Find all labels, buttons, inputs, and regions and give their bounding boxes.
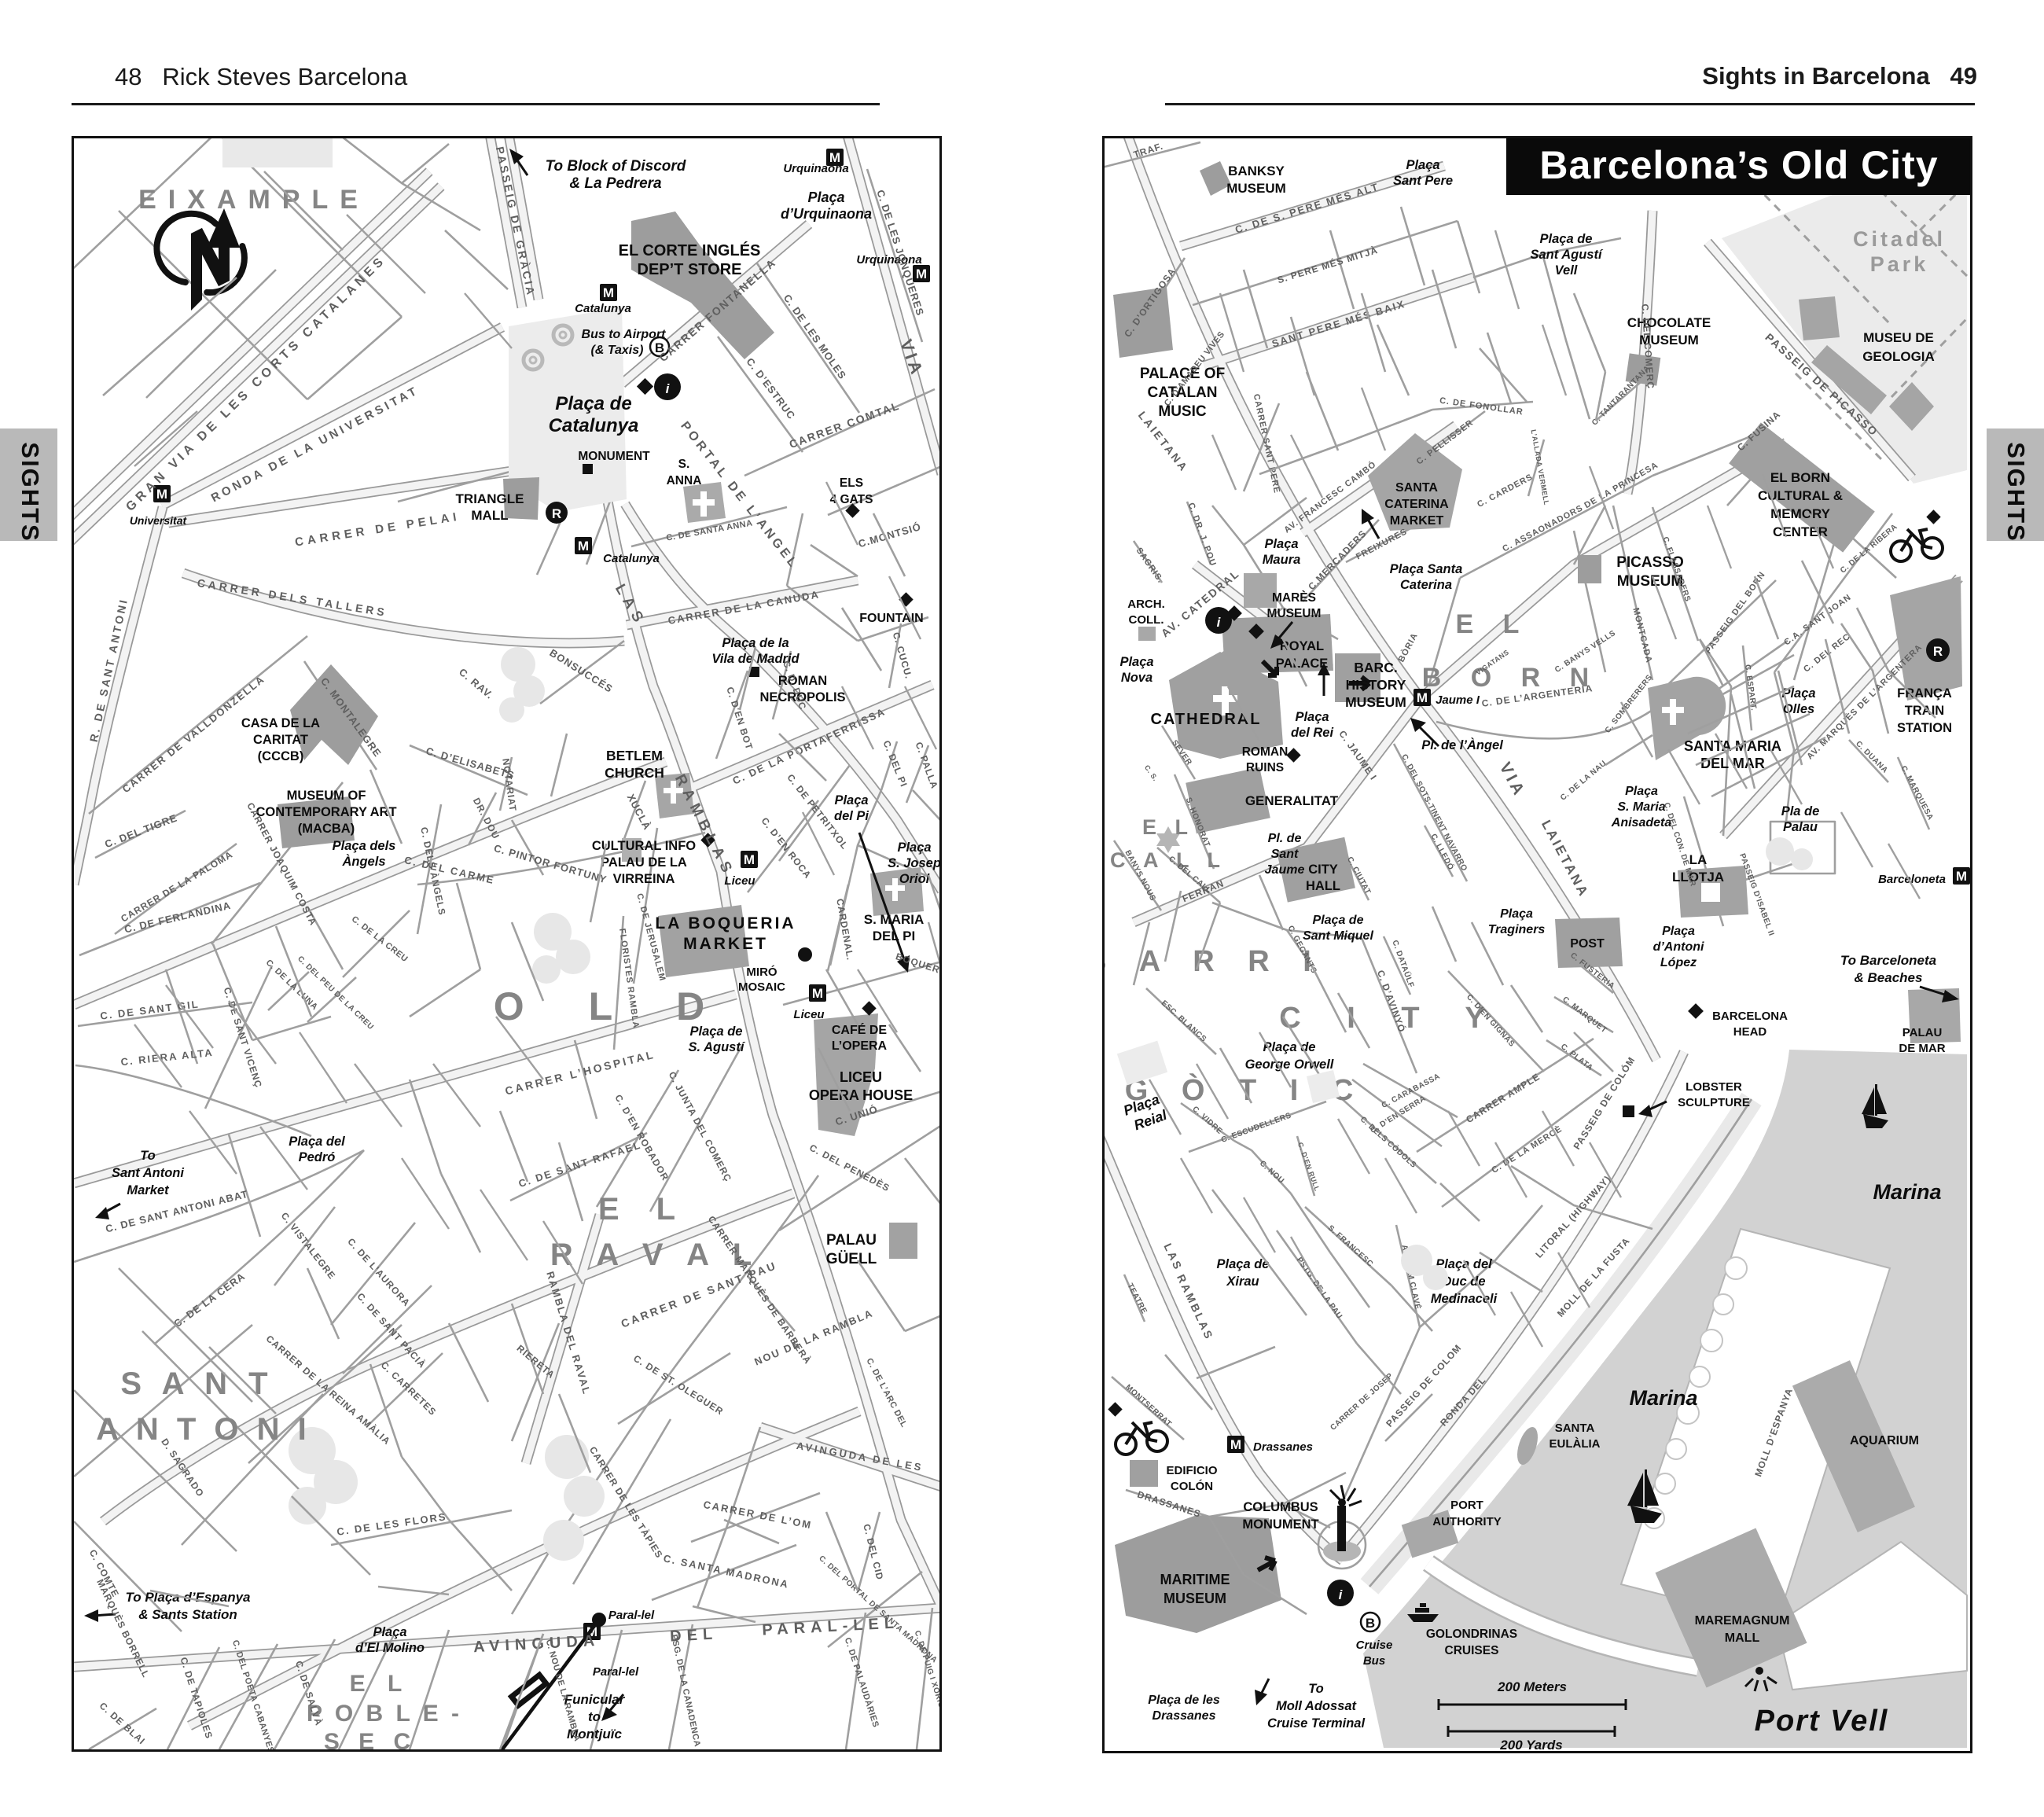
svg-text:C. DEL PENEDÈS: C. DEL PENEDÈS xyxy=(807,1142,892,1194)
svg-text:CARRER DELS TALLERS: CARRER DELS TALLERS xyxy=(197,576,388,619)
svg-text:PSTG. DE LA PAU: PSTG. DE LA PAU xyxy=(1295,1256,1344,1321)
svg-text:CRUISES: CRUISES xyxy=(1445,1644,1499,1657)
svg-text:M: M xyxy=(1230,1437,1241,1452)
svg-text:d’Urquinaona: d’Urquinaona xyxy=(781,206,872,222)
svg-text:C. RAV.: C. RAV. xyxy=(457,666,496,701)
svg-text:MONUMENT: MONUMENT xyxy=(578,450,650,463)
svg-text:Plaça: Plaça xyxy=(1662,925,1695,938)
svg-text:RONDA DEL: RONDA DEL xyxy=(1438,1374,1488,1429)
svg-text:EL CORTE INGLÉS: EL CORTE INGLÉS xyxy=(619,241,761,259)
svg-text:PSG. DE LA CANADENCA: PSG. DE LA CANADENCA xyxy=(669,1634,702,1748)
svg-text:Plaça: Plaça xyxy=(373,1625,406,1639)
svg-text:Sant: Sant xyxy=(1271,848,1299,861)
svg-text:López: López xyxy=(1660,956,1697,969)
svg-text:AV. FRANCESC CAMBÓ: AV. FRANCESC CAMBÓ xyxy=(1282,459,1378,535)
svg-text:M: M xyxy=(578,539,589,554)
svg-text:Medinaceli: Medinaceli xyxy=(1431,1292,1498,1306)
svg-text:Àngels: Àngels xyxy=(341,854,385,869)
svg-text:To: To xyxy=(1308,1682,1324,1696)
svg-text:CONTEMPORARY ART: CONTEMPORARY ART xyxy=(256,805,396,819)
svg-text:VIA: VIA xyxy=(1496,760,1529,800)
svg-text:GEOLOGIA: GEOLOGIA xyxy=(1862,349,1935,364)
svg-text:MUSIC: MUSIC xyxy=(1158,403,1207,420)
svg-text:C. DE PUIG I XORIGUER: C. DE PUIG I XORIGUER xyxy=(913,1630,942,1727)
svg-text:C. DE LA MERCÈ: C. DE LA MERCÈ xyxy=(1490,1124,1564,1175)
svg-text:HALL: HALL xyxy=(1306,879,1340,893)
svg-text:M: M xyxy=(603,285,614,300)
svg-text:To Barceloneta: To Barceloneta xyxy=(1840,953,1936,968)
svg-text:EL BORN: EL BORN xyxy=(1770,470,1830,485)
svg-text:CULTURAL INFO: CULTURAL INFO xyxy=(592,839,696,853)
svg-text:Palau: Palau xyxy=(1783,820,1818,834)
svg-text:DE MAR: DE MAR xyxy=(1899,1042,1945,1055)
svg-text:S A N T: S A N T xyxy=(120,1366,274,1401)
svg-text:C. DEL CID: C. DEL CID xyxy=(861,1523,885,1581)
svg-text:EDIFICIO: EDIFICIO xyxy=(1166,1464,1217,1477)
svg-text:MUSEUM: MUSEUM xyxy=(1267,607,1322,620)
svg-text:CHOCOLATE: CHOCOLATE xyxy=(1627,315,1711,330)
svg-text:Plaça Santa: Plaça Santa xyxy=(1390,562,1463,576)
svg-text:Barcelona’s Old City: Barcelona’s Old City xyxy=(1539,143,1938,187)
svg-text:TRAF.: TRAF. xyxy=(1132,141,1164,160)
svg-text:LOBSTER: LOBSTER xyxy=(1686,1080,1742,1094)
svg-text:CASA DE LA: CASA DE LA xyxy=(241,716,320,730)
svg-text:d’El Molino: d’El Molino xyxy=(355,1641,425,1655)
svg-text:C. RIERA ALTA: C. RIERA ALTA xyxy=(120,1046,214,1068)
svg-text:MUSEUM: MUSEUM xyxy=(1345,694,1406,710)
svg-text:E L: E L xyxy=(598,1192,689,1227)
svg-text:MUSEUM: MUSEUM xyxy=(1226,181,1286,196)
svg-text:S. Maria: S. Maria xyxy=(1617,800,1665,814)
svg-text:O L D: O L D xyxy=(494,984,731,1028)
svg-text:& La Pedrera: & La Pedrera xyxy=(569,175,662,192)
svg-text:Oriol: Oriol xyxy=(899,872,930,886)
svg-text:Plaça de: Plaça de xyxy=(1217,1257,1270,1271)
svg-text:EULÀLIA: EULÀLIA xyxy=(1550,1437,1601,1451)
svg-text:C. JUNTA DEL COMERÇ: C. JUNTA DEL COMERÇ xyxy=(667,1070,734,1184)
svg-text:Pla de: Pla de xyxy=(1781,804,1820,818)
svg-text:AQUARIUM: AQUARIUM xyxy=(1850,1434,1919,1447)
svg-text:C. DEL SOTS-TINENT NAVARRO: C. DEL SOTS-TINENT NAVARRO xyxy=(1399,753,1469,874)
svg-text:GÜELL: GÜELL xyxy=(826,1251,877,1267)
svg-text:FOUNTAIN: FOUNTAIN xyxy=(859,612,923,625)
svg-text:Plaça dels: Plaça dels xyxy=(333,839,396,853)
svg-text:SCULPTURE: SCULPTURE xyxy=(1678,1096,1750,1109)
svg-text:E L: E L xyxy=(350,1671,410,1697)
svg-text:Plaça: Plaça xyxy=(1625,785,1658,798)
svg-text:CARRER DE PELAI: CARRER DE PELAI xyxy=(294,510,461,550)
svg-text:LICEU: LICEU xyxy=(840,1069,882,1085)
svg-text:Catalunya: Catalunya xyxy=(575,302,631,315)
svg-text:Sant Miquel: Sant Miquel xyxy=(1303,929,1373,943)
svg-text:Market: Market xyxy=(127,1183,170,1197)
svg-text:Catalunya: Catalunya xyxy=(549,415,639,436)
svg-text:MONTCADA: MONTCADA xyxy=(1630,607,1653,664)
svg-text:C. DE PALAUDÀRIES: C. DE PALAUDÀRIES xyxy=(843,1636,881,1729)
svg-text:A N T O N I: A N T O N I xyxy=(96,1412,311,1447)
svg-text:BÒRIA: BÒRIA xyxy=(1396,631,1420,664)
svg-text:CHURCH: CHURCH xyxy=(605,765,664,781)
svg-text:Traginers: Traginers xyxy=(1488,923,1546,936)
svg-text:PALAU DE LA: PALAU DE LA xyxy=(601,855,687,870)
svg-text:Port Vell: Port Vell xyxy=(1755,1705,1889,1738)
svg-text:MIRÓ: MIRÓ xyxy=(746,965,777,979)
svg-text:PORT: PORT xyxy=(1450,1499,1483,1512)
svg-text:del Pi: del Pi xyxy=(834,809,869,823)
svg-text:S. FRANCESC: S. FRANCESC xyxy=(1326,1224,1375,1269)
svg-text:Sant Antoni: Sant Antoni xyxy=(112,1166,184,1180)
svg-text:COLÓN: COLÓN xyxy=(1171,1479,1213,1493)
svg-text:DEL PI: DEL PI xyxy=(873,929,915,943)
svg-text:Catalunya: Catalunya xyxy=(603,552,660,565)
svg-text:MARITIME: MARITIME xyxy=(1160,1572,1230,1587)
svg-text:Plaça del: Plaça del xyxy=(289,1135,345,1149)
svg-text:Plaça: Plaça xyxy=(1119,655,1153,669)
svg-text:(& Taxis): (& Taxis) xyxy=(591,344,644,357)
svg-text:Jaume I: Jaume I xyxy=(1436,693,1480,707)
svg-text:Sant Pere: Sant Pere xyxy=(1393,174,1453,188)
svg-text:Park: Park xyxy=(1870,252,1929,276)
svg-text:(CCCB): (CCCB) xyxy=(258,749,304,763)
svg-text:C. ESCUDELLERS: C. ESCUDELLERS xyxy=(1220,1111,1292,1145)
svg-text:Plaça de: Plaça de xyxy=(690,1024,743,1039)
svg-text:BETLEM: BETLEM xyxy=(606,748,663,763)
svg-text:200 Meters: 200 Meters xyxy=(1497,1679,1567,1694)
svg-text:HEAD: HEAD xyxy=(1733,1025,1767,1039)
svg-text:C. NOU DE LA RAMBLA: C. NOU DE LA RAMBLA xyxy=(544,1639,583,1742)
svg-text:S.: S. xyxy=(678,458,690,471)
svg-text:B: B xyxy=(1366,1616,1375,1631)
svg-text:M: M xyxy=(744,852,755,867)
svg-text:E L: E L xyxy=(1456,609,1531,639)
svg-text:C. SANTA MADRONA: C. SANTA MADRONA xyxy=(662,1552,790,1591)
svg-text:MUSEU DE: MUSEU DE xyxy=(1863,330,1934,345)
svg-text:CARITAT: CARITAT xyxy=(253,733,308,747)
svg-text:TRIANGLE: TRIANGLE xyxy=(456,491,524,506)
svg-text:R: R xyxy=(1933,644,1943,659)
svg-text:P O B L E -: P O B L E - xyxy=(307,1701,462,1727)
svg-text:C. PINTOR FORTUNY: C. PINTOR FORTUNY xyxy=(493,842,608,885)
svg-text:TEATRE: TEATRE xyxy=(1125,1282,1149,1315)
svg-text:CATHEDRAL: CATHEDRAL xyxy=(1151,711,1262,728)
svg-text:Pedró: Pedró xyxy=(299,1150,336,1164)
svg-text:Nova: Nova xyxy=(1121,671,1153,685)
svg-text:PASSEIG DE COLÓM: PASSEIG DE COLÓM xyxy=(1571,1054,1638,1152)
svg-text:Plaça de: Plaça de xyxy=(555,393,631,414)
svg-text:4 GATS: 4 GATS xyxy=(830,493,873,506)
svg-text:Maura: Maura xyxy=(1263,553,1301,567)
svg-text:OPERA HOUSE: OPERA HOUSE xyxy=(809,1087,913,1103)
svg-text:ELS: ELS xyxy=(840,476,863,490)
svg-text:BARC.: BARC. xyxy=(1354,660,1397,675)
svg-text:DRASSANES: DRASSANES xyxy=(1136,1489,1203,1520)
svg-text:C. DE SANT RAFAEL: C. DE SANT RAFAEL xyxy=(517,1138,643,1190)
svg-text:CARRER AMPLE: CARRER AMPLE xyxy=(1464,1071,1542,1125)
svg-text:Liceu: Liceu xyxy=(793,1008,824,1021)
svg-text:C. MARQUET: C. MARQUET xyxy=(1561,995,1608,1035)
svg-text:C. DR. J. POU: C. DR. J. POU xyxy=(1186,502,1218,568)
svg-text:Marina: Marina xyxy=(1873,1180,1941,1204)
svg-text:& Beaches: & Beaches xyxy=(1855,970,1923,985)
svg-text:d’Antoni: d’Antoni xyxy=(1653,940,1704,954)
svg-text:Bus to Airport: Bus to Airport xyxy=(582,328,667,341)
svg-text:To Block of Discord: To Block of Discord xyxy=(546,158,686,175)
svg-text:L’OPERA: L’OPERA xyxy=(832,1039,888,1053)
svg-text:Marina: Marina xyxy=(1629,1386,1697,1410)
svg-text:GOLONDRINAS: GOLONDRINAS xyxy=(1426,1628,1517,1641)
svg-text:MARKET: MARKET xyxy=(1390,514,1444,528)
svg-text:Plaça: Plaça xyxy=(834,793,868,807)
svg-text:MUSEUM: MUSEUM xyxy=(1164,1591,1226,1606)
svg-text:CAFÉ DE: CAFÉ DE xyxy=(832,1022,888,1037)
svg-text:LA BOQUERIA: LA BOQUERIA xyxy=(655,914,796,932)
svg-text:C. D’EN ROBADOR: C. D’EN ROBADOR xyxy=(612,1093,671,1183)
svg-text:RUINS: RUINS xyxy=(1246,761,1284,774)
svg-text:LAS: LAS xyxy=(1161,1241,1185,1273)
svg-text:B A R R I: B A R R I xyxy=(1102,945,1324,978)
svg-text:MOSAIC: MOSAIC xyxy=(738,980,785,994)
svg-text:C. ASSAONADORS: C. ASSAONADORS xyxy=(1501,503,1585,554)
svg-text:Plaça: Plaça xyxy=(807,189,844,205)
svg-text:Plaça: Plaça xyxy=(1406,158,1439,172)
svg-text:S. PERE MÉS MITJÀ: S. PERE MÉS MITJÀ xyxy=(1276,244,1380,285)
svg-text:C. NOU: C. NOU xyxy=(1258,1159,1286,1186)
svg-text:Moll Adossat: Moll Adossat xyxy=(1276,1699,1358,1713)
svg-text:Funicular: Funicular xyxy=(564,1692,626,1707)
svg-text:C. S.: C. S. xyxy=(1143,763,1160,782)
svg-text:ARCH.: ARCH. xyxy=(1127,598,1165,611)
svg-text:PALAU: PALAU xyxy=(1902,1026,1943,1039)
svg-text:del Rei: del Rei xyxy=(1291,726,1334,740)
svg-text:Caterina: Caterina xyxy=(1400,578,1452,592)
svg-text:MUSEUM: MUSEUM xyxy=(1617,573,1683,590)
svg-text:L’ALLADA VERMELL: L’ALLADA VERMELL xyxy=(1530,429,1551,506)
svg-text:AUTHORITY: AUTHORITY xyxy=(1432,1515,1502,1528)
svg-text:CARRER COMTAL: CARRER COMTAL xyxy=(788,399,902,451)
svg-text:C. DEL REC: C. DEL REC xyxy=(1802,632,1852,675)
svg-text:BONSUCCÉS: BONSUCCÉS xyxy=(547,646,615,695)
svg-text:C. DE LA NAU: C. DE LA NAU xyxy=(1559,759,1608,802)
svg-text:STATION: STATION xyxy=(1897,721,1952,735)
svg-text:Plaça de: Plaça de xyxy=(1313,914,1364,927)
svg-text:S. MARIA: S. MARIA xyxy=(864,912,925,927)
svg-text:POST: POST xyxy=(1570,937,1605,951)
svg-text:Drassanes: Drassanes xyxy=(1153,1709,1216,1723)
svg-text:C. D’EN RULL: C. D’EN RULL xyxy=(1296,1141,1322,1192)
svg-text:C. D’ESTRUC: C. D’ESTRUC xyxy=(744,355,798,421)
svg-text:C. DE LA CREU: C. DE LA CREU xyxy=(350,914,410,964)
svg-text:Drassanes: Drassanes xyxy=(1253,1440,1313,1454)
svg-text:M: M xyxy=(916,267,927,281)
svg-text:SANTA: SANTA xyxy=(1555,1422,1595,1435)
svg-text:PALACE: PALACE xyxy=(1276,657,1329,671)
svg-text:CITY: CITY xyxy=(1308,863,1338,877)
svg-text:200 Yards: 200 Yards xyxy=(1499,1738,1562,1753)
svg-text:PALAU: PALAU xyxy=(826,1232,877,1249)
svg-text:Plaça: Plaça xyxy=(1500,907,1533,921)
svg-text:MONUMENT: MONUMENT xyxy=(1242,1517,1318,1532)
svg-text:M: M xyxy=(1956,869,1967,884)
svg-text:Anisadeta: Anisadeta xyxy=(1611,816,1672,829)
svg-text:C. DUANA: C. DUANA xyxy=(1854,740,1889,775)
svg-text:& Sants Station: & Sants Station xyxy=(138,1607,237,1622)
svg-text:Cruise: Cruise xyxy=(1356,1639,1393,1652)
svg-text:Bus: Bus xyxy=(1363,1654,1385,1668)
svg-text:E L: E L xyxy=(1142,815,1194,839)
svg-text:VIA: VIA xyxy=(896,337,928,379)
svg-text:Cruise Terminal: Cruise Terminal xyxy=(1267,1716,1366,1731)
svg-text:(MACBA): (MACBA) xyxy=(298,822,355,836)
svg-text:Vell: Vell xyxy=(1555,263,1578,278)
svg-text:Plaça: Plaça xyxy=(1295,710,1329,724)
svg-text:C. MARQUESA: C. MARQUESA xyxy=(1899,764,1935,822)
svg-text:COLL.: COLL. xyxy=(1129,613,1164,627)
svg-text:Sant Agustí: Sant Agustí xyxy=(1530,248,1603,262)
svg-text:LLOTJA: LLOTJA xyxy=(1672,870,1724,885)
svg-text:S E C: S E C xyxy=(324,1729,417,1752)
svg-text:CARRER DE L’OM: CARRER DE L’OM xyxy=(702,1499,813,1532)
svg-text:Paral-lel: Paral-lel xyxy=(593,1665,639,1679)
svg-text:DEP’T STORE: DEP’T STORE xyxy=(638,261,742,278)
svg-text:ROMAN: ROMAN xyxy=(1242,745,1289,759)
svg-text:HISTORY: HISTORY xyxy=(1346,677,1406,693)
svg-text:SANT PERE MÉS BAIX: SANT PERE MÉS BAIX xyxy=(1270,298,1407,350)
svg-text:C. DE SANTA ANNA: C. DE SANTA ANNA xyxy=(666,518,754,543)
svg-text:Pl. de l’Àngel: Pl. de l’Àngel xyxy=(1421,737,1503,752)
svg-text:BARCELONA: BARCELONA xyxy=(1712,1010,1788,1023)
svg-text:Plaça: Plaça xyxy=(897,840,931,855)
svg-text:SAGRIS.: SAGRIS. xyxy=(1134,546,1166,585)
svg-text:Xirau: Xirau xyxy=(1226,1274,1259,1289)
svg-text:Urquinaona: Urquinaona xyxy=(783,162,848,175)
svg-text:BANKSY: BANKSY xyxy=(1228,164,1285,178)
svg-text:C. DEL TIGRE: C. DEL TIGRE xyxy=(103,811,179,850)
svg-text:R: R xyxy=(552,506,561,521)
svg-text:MAREMAGNUM: MAREMAGNUM xyxy=(1695,1614,1790,1628)
svg-text:Plaça: Plaça xyxy=(1264,537,1298,551)
svg-text:MARÈS: MARÈS xyxy=(1272,591,1316,605)
svg-text:C. DE LA CERA: C. DE LA CERA xyxy=(171,1270,248,1330)
svg-text:MARKET: MARKET xyxy=(683,935,768,953)
svg-text:DE LA PRINCESA: DE LA PRINCESA xyxy=(1583,461,1660,511)
svg-text:LAIETANA: LAIETANA xyxy=(1539,818,1592,900)
svg-text:LA: LA xyxy=(1689,852,1708,867)
svg-text:C. CARRETES: C. CARRETES xyxy=(379,1359,439,1418)
svg-text:MALL: MALL xyxy=(1725,1631,1760,1645)
svg-text:Plaça de: Plaça de xyxy=(1540,232,1593,246)
svg-text:AVINGUDA DE LES: AVINGUDA DE LES xyxy=(796,1440,925,1473)
svg-text:Plaça de les: Plaça de les xyxy=(1148,1694,1220,1707)
svg-text:S. Agustí: S. Agustí xyxy=(689,1040,746,1054)
svg-text:Urquinaona: Urquinaona xyxy=(856,253,921,267)
svg-text:ANNA: ANNA xyxy=(667,474,702,487)
svg-text:Citadel: Citadel xyxy=(1853,227,1946,251)
svg-text:To: To xyxy=(140,1149,156,1163)
svg-text:Pl. de: Pl. de xyxy=(1268,832,1302,845)
svg-text:ESC. BLANCS: ESC. BLANCS xyxy=(1160,999,1208,1044)
svg-text:C. VIDRE: C. VIDRE xyxy=(1190,1105,1224,1136)
svg-text:Universitat: Universitat xyxy=(130,514,188,527)
svg-text:CATERINA: CATERINA xyxy=(1384,498,1449,511)
svg-text:MUSEUM OF: MUSEUM OF xyxy=(287,789,366,803)
svg-text:George Orwell: George Orwell xyxy=(1245,1057,1334,1072)
svg-text:SANTA: SANTA xyxy=(1395,481,1438,495)
svg-text:COLUMBUS: COLUMBUS xyxy=(1243,1500,1318,1514)
svg-text:MALL: MALL xyxy=(471,508,508,523)
svg-text:VIRREINA: VIRREINA xyxy=(613,872,675,886)
svg-text:C. DE LES MOLES: C. DE LES MOLES xyxy=(781,292,849,382)
svg-text:to: to xyxy=(588,1709,601,1724)
svg-text:Jaume: Jaume xyxy=(1265,863,1305,877)
svg-text:SANTA MARIA: SANTA MARIA xyxy=(1684,738,1781,754)
svg-text:EIXAMPLE: EIXAMPLE xyxy=(138,185,369,215)
svg-text:C. SOMBRERERS: C. SOMBRERERS xyxy=(1604,673,1655,734)
svg-text:M: M xyxy=(812,986,823,1001)
svg-text:GENERALITAT: GENERALITAT xyxy=(1245,793,1339,808)
svg-text:S. Josep: S. Josep xyxy=(888,856,941,870)
svg-text:Paral-lel: Paral-lel xyxy=(608,1609,655,1622)
svg-text:C. CARDERS: C. CARDERS xyxy=(1476,473,1535,509)
svg-text:CARRER DE VALLDONZELLA: CARRER DE VALLDONZELLA xyxy=(120,673,267,796)
